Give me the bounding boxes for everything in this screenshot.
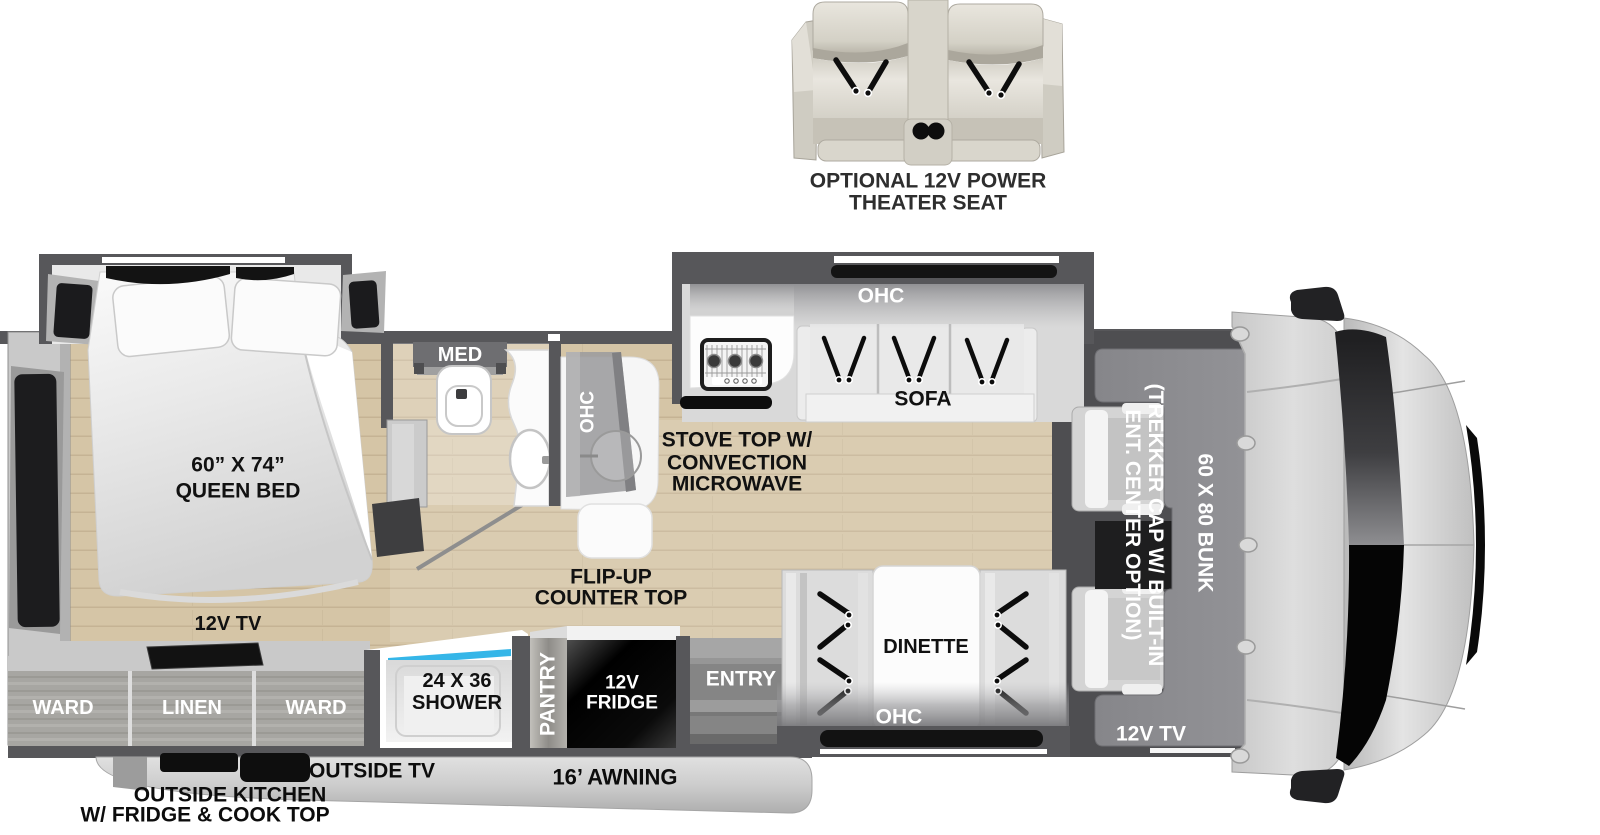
svg-text:COUNTER TOP: COUNTER TOP [535, 587, 687, 610]
svg-text:OUTSIDE TV: OUTSIDE TV [309, 760, 435, 783]
svg-text:OHC: OHC [578, 391, 599, 434]
svg-text:OPTIONAL 12V POWER: OPTIONAL 12V POWER [810, 170, 1047, 193]
svg-text:WARD: WARD [32, 697, 93, 719]
svg-text:SHOWER: SHOWER [412, 692, 503, 714]
svg-text:PANTRY: PANTRY [537, 652, 560, 736]
svg-text:24 X 36: 24 X 36 [423, 670, 492, 692]
svg-text:FRIDGE: FRIDGE [586, 693, 658, 714]
svg-text:OHC: OHC [858, 285, 905, 308]
svg-text:CONVECTION: CONVECTION [667, 452, 807, 475]
svg-text:WARD: WARD [285, 697, 346, 719]
svg-text:60 X 80 BUNK: 60 X 80 BUNK [1194, 454, 1217, 593]
svg-text:16’ AWNING: 16’ AWNING [552, 765, 677, 790]
svg-text:DINETTE: DINETTE [883, 636, 969, 658]
svg-text:THEATER SEAT: THEATER SEAT [849, 192, 1007, 215]
svg-text:W/ FRIDGE & COOK TOP: W/ FRIDGE & COOK TOP [80, 804, 329, 827]
svg-text:SOFA: SOFA [894, 388, 951, 411]
svg-text:12V: 12V [605, 673, 639, 694]
svg-text:12V TV: 12V TV [195, 613, 262, 635]
svg-text:ENTRY: ENTRY [706, 668, 776, 691]
svg-text:QUEEN BED: QUEEN BED [176, 480, 301, 503]
svg-text:60” X 74”: 60” X 74” [191, 454, 284, 477]
svg-text:FLIP-UP: FLIP-UP [570, 566, 652, 589]
svg-text:MED: MED [438, 344, 482, 366]
svg-text:STOVE TOP W/: STOVE TOP W/ [662, 429, 813, 452]
svg-text:OHC: OHC [876, 706, 923, 729]
svg-text:(TREKKER CAP W/ BUILT-INENT. C: (TREKKER CAP W/ BUILT-INENT. CENTER OPTI… [1121, 384, 1167, 667]
svg-text:12V TV: 12V TV [1116, 723, 1186, 746]
svg-text:LINEN: LINEN [162, 697, 222, 719]
svg-text:MICROWAVE: MICROWAVE [672, 473, 802, 496]
